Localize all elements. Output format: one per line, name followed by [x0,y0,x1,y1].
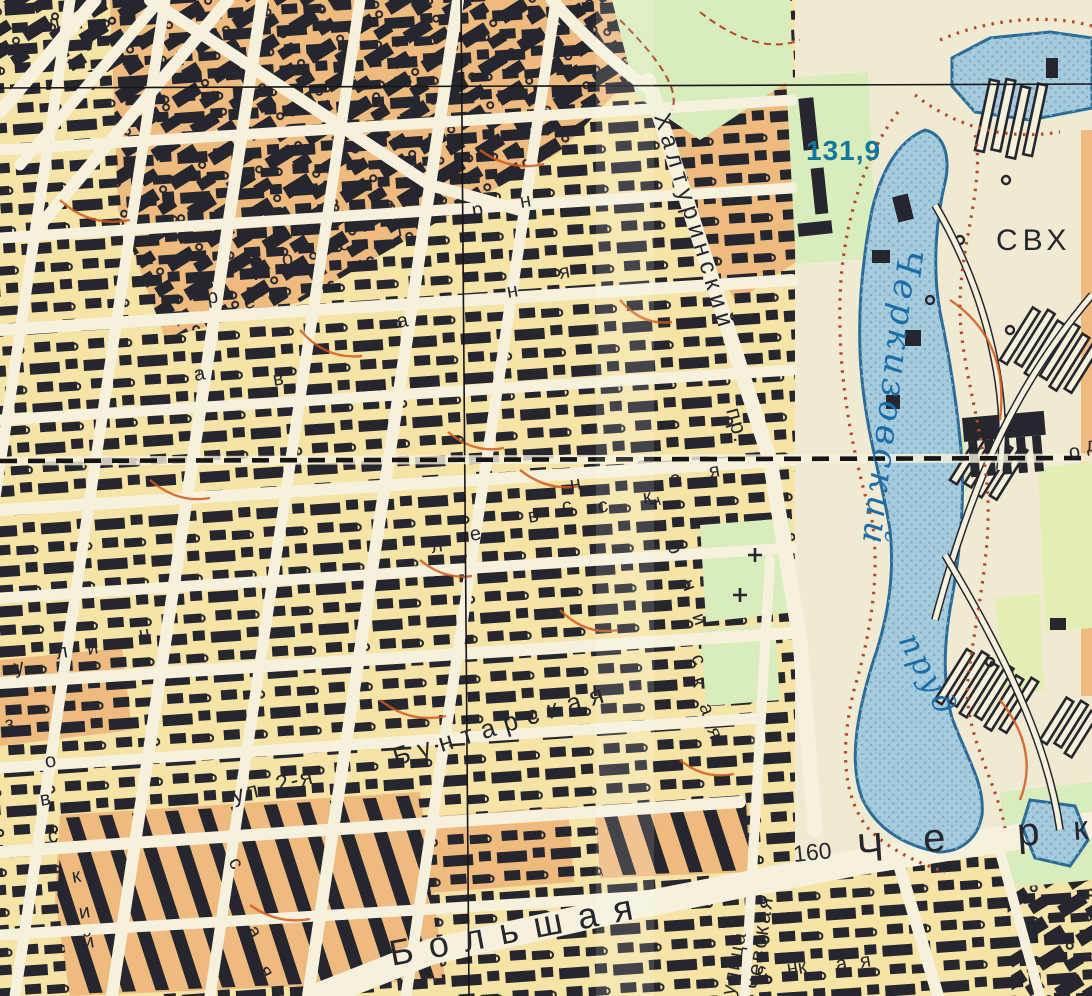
label-pond-elevation: 131,9 [806,135,881,166]
label-cherkizovskaya-ch: Ч [856,825,886,871]
label-sovkhoz: СВХ [996,224,1071,257]
label-cherkizovskaya-e: е [922,816,947,861]
green-block-131-9 [786,72,876,264]
label-cherkizovskaya-r: р [1016,810,1041,855]
label-house-number-160: 160 [792,837,833,867]
city-map: 131,9СВХХалтуринскийпр.ЧеркизовскийпрудБ… [0,0,1092,996]
map-viewport[interactable]: 131,9СВХХалтуринскийпр.ЧеркизовскийпрудБ… [0,0,1092,996]
